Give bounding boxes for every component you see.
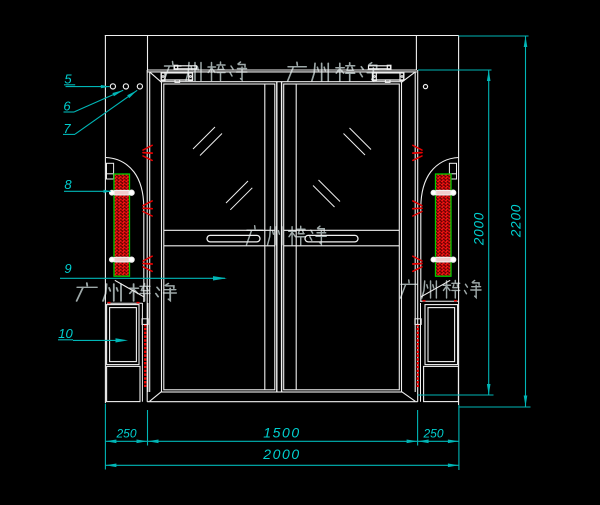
svg-text:250: 250 bbox=[422, 426, 443, 440]
svg-text:7: 7 bbox=[63, 121, 71, 136]
svg-text:2000: 2000 bbox=[472, 212, 487, 246]
svg-text:2200: 2200 bbox=[509, 204, 524, 238]
svg-text:6: 6 bbox=[63, 99, 71, 114]
svg-text:9: 9 bbox=[64, 261, 71, 276]
svg-text:2000: 2000 bbox=[262, 446, 301, 462]
svg-text:8: 8 bbox=[64, 177, 72, 192]
svg-text:10: 10 bbox=[58, 326, 73, 341]
svg-text:250: 250 bbox=[115, 426, 136, 440]
svg-text:1500: 1500 bbox=[263, 424, 301, 440]
